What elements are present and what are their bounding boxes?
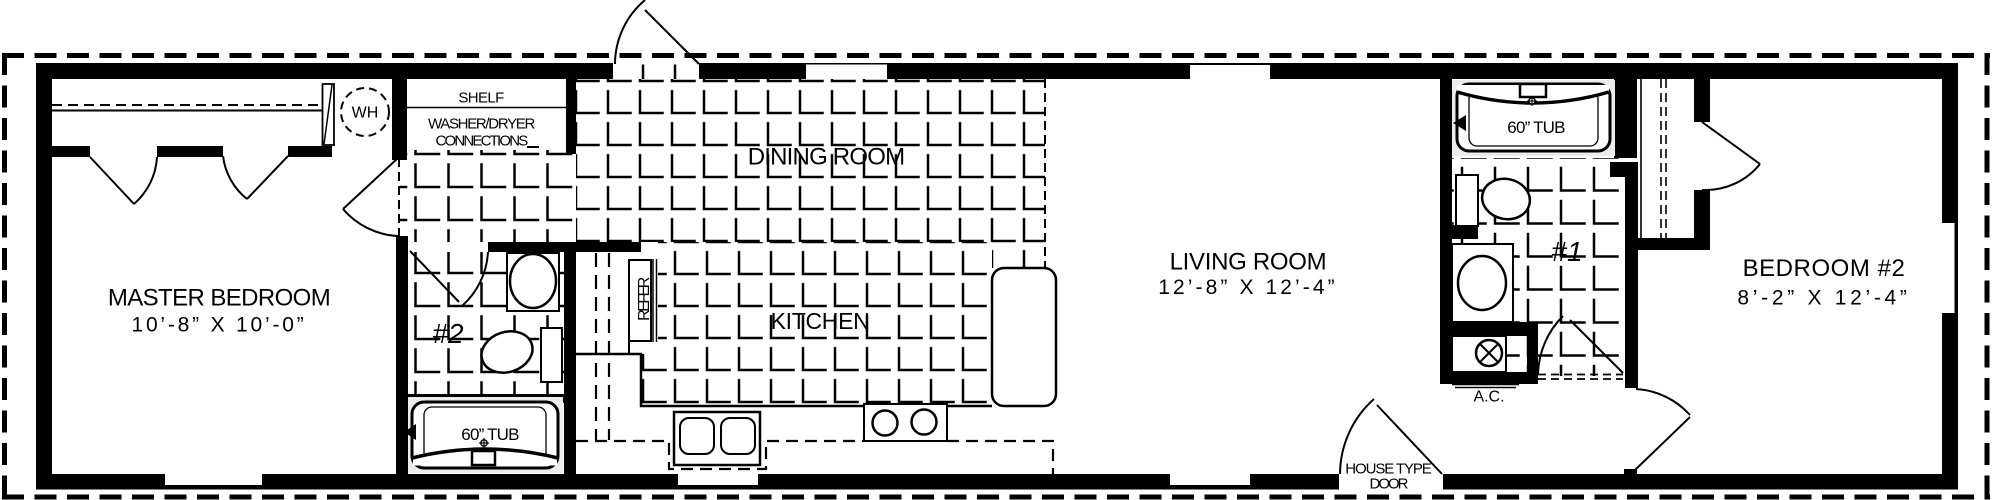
svg-text:A.C.: A.C. (1473, 389, 1504, 406)
svg-text:DOOR: DOOR (1370, 476, 1409, 493)
svg-text:WASHER/DRYER: WASHER/DRYER (428, 116, 536, 133)
svg-text:LIVING ROOM: LIVING ROOM (1170, 249, 1327, 276)
svg-text:MASTER BEDROOM: MASTER BEDROOM (108, 285, 330, 312)
svg-text:DINING ROOM: DINING ROOM (748, 144, 905, 171)
svg-text:CONNECTIONS: CONNECTIONS (435, 133, 528, 150)
svg-text:10’-8” X 10’-0”: 10’-8” X 10’-0” (131, 314, 306, 337)
svg-text:KITCHEN: KITCHEN (771, 308, 870, 334)
svg-text:60” TUB: 60” TUB (461, 425, 519, 444)
svg-text:12’-8” X 12’-4”: 12’-8” X 12’-4” (1158, 276, 1338, 299)
svg-text:60” TUB: 60” TUB (1507, 118, 1565, 137)
svg-text:#1: #1 (1551, 236, 1582, 267)
svg-text:#2: #2 (432, 318, 464, 349)
svg-text:REFER: REFER (636, 277, 653, 321)
svg-text:8’-2” X 12’-4”: 8’-2” X 12’-4” (1737, 287, 1910, 310)
svg-text:WH: WH (352, 105, 379, 122)
svg-text:BEDROOM #2: BEDROOM #2 (1743, 255, 1906, 282)
svg-text:SHELF: SHELF (458, 90, 504, 107)
